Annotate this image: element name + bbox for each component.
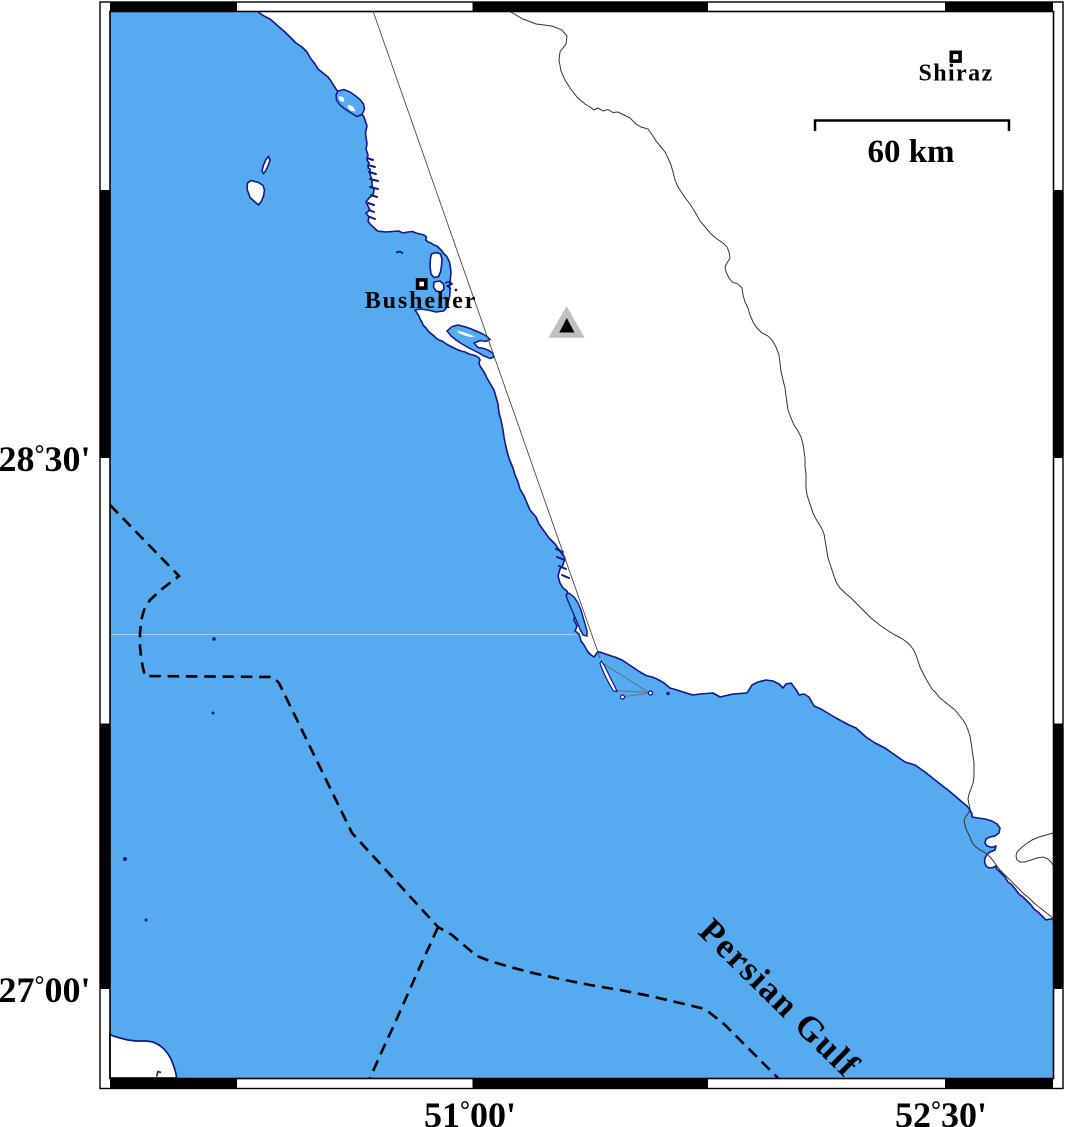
svg-text:27°00': 27°00': [0, 970, 91, 1010]
svg-text:51°00': 51°00': [424, 1095, 516, 1127]
svg-text:52°30': 52°30': [895, 1095, 987, 1127]
svg-text:Busheher: Busheher: [365, 288, 478, 314]
svg-text:60 km: 60 km: [867, 134, 954, 170]
svg-text:28°30': 28°30': [0, 439, 91, 479]
svg-text:Shiraz: Shiraz: [918, 61, 993, 87]
